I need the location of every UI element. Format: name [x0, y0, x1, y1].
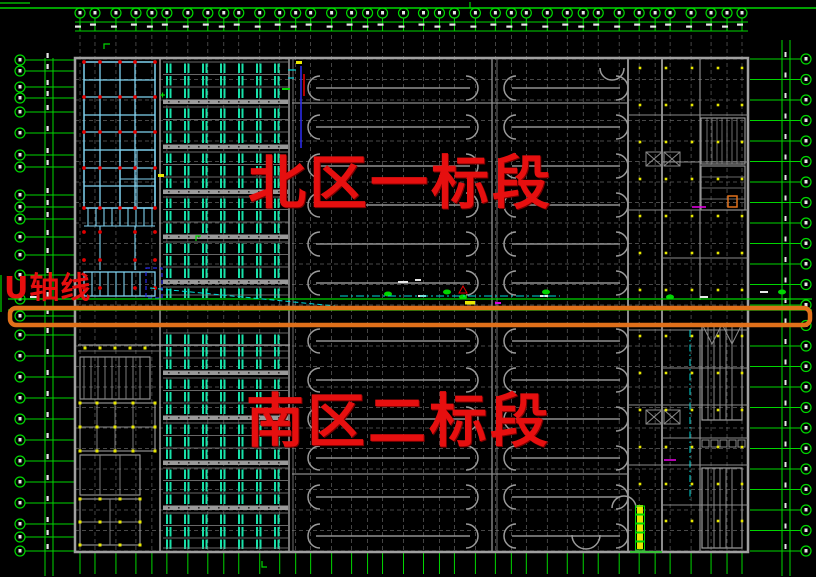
- rack-sections: [163, 62, 288, 549]
- dimension-ticks: [47, 24, 787, 550]
- label-north-section: 北区一标段: [248, 154, 553, 212]
- cad-drawing-viewport[interactable]: 北区一标段 南区二标段 U轴线: [0, 0, 816, 577]
- label-u-axis-line: U轴线: [4, 274, 91, 304]
- floor-plan-drawing: [0, 0, 816, 577]
- label-south-section: 南区二标段: [246, 392, 551, 450]
